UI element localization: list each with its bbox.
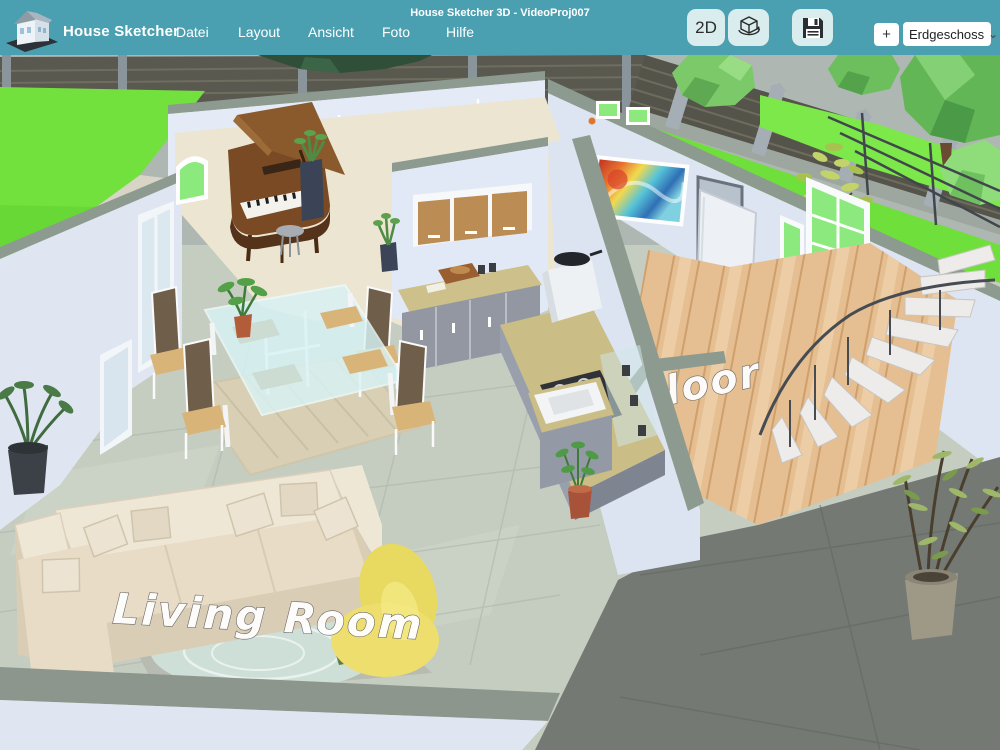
floor-selector-dropdown[interactable]: Erdgeschoss ⌄ xyxy=(903,22,991,46)
menu-ansicht[interactable]: Ansicht xyxy=(308,24,354,40)
menu-foto[interactable]: Foto xyxy=(382,24,410,40)
view-2d-button[interactable]: 2D xyxy=(687,9,725,46)
app-brand: House Sketcher xyxy=(63,23,179,40)
add-floor-button[interactable]: + xyxy=(874,23,899,46)
house-sketcher-app: House Sketcher Datei Layout Ansicht Foto… xyxy=(0,0,1000,750)
view-3d-cube-button[interactable] xyxy=(728,9,769,46)
3d-scene-viewport[interactable]: Floor xyxy=(0,55,1000,750)
window-title: House Sketcher 3D - VideoProj007 xyxy=(0,7,1000,19)
chevron-down-icon: ⌄ xyxy=(988,29,998,39)
menu-hilfe[interactable]: Hilfe xyxy=(446,24,474,40)
top-toolbar: House Sketcher Datei Layout Ansicht Foto… xyxy=(0,0,1000,55)
orange-ball xyxy=(589,118,596,125)
floor-selector-value: Erdgeschoss xyxy=(909,27,984,42)
menu-layout[interactable]: Layout xyxy=(238,24,280,40)
save-button[interactable] xyxy=(792,9,833,46)
save-floppy-icon xyxy=(800,15,826,41)
3d-view-cube-icon xyxy=(735,14,763,42)
menu-datei[interactable]: Datei xyxy=(176,24,209,40)
